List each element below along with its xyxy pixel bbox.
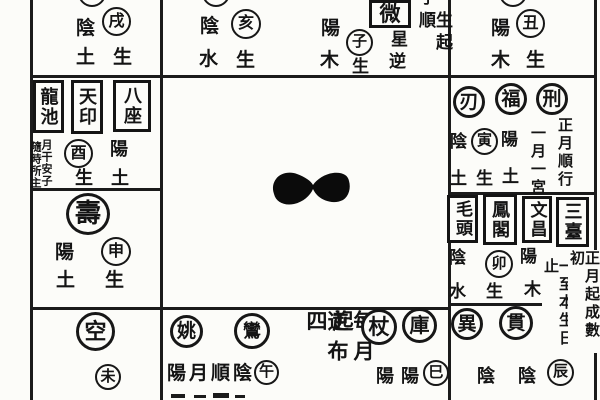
circled-star-ren: 刃	[453, 86, 485, 118]
ink-blob-bowtie	[270, 169, 354, 207]
sheng-label: 生	[236, 51, 255, 70]
sheng-label: 生	[476, 170, 493, 187]
branch-hai-circle: 亥	[231, 9, 261, 39]
yinyang-label: 陰	[518, 367, 536, 385]
boxed-star-tianyin: 天印	[71, 80, 103, 134]
circled-star-yi: 異	[451, 308, 483, 340]
cut-circle-top-chou	[499, 0, 527, 7]
sheng-label: 生	[105, 271, 124, 290]
branch-yin-circle: 寅	[471, 128, 498, 155]
element-label: 土	[502, 168, 519, 185]
note-column-yi-yue-yi-gong: 一月一宮	[529, 125, 544, 197]
grid-hline-right-row3	[448, 303, 544, 306]
cut-text-fragment	[194, 395, 206, 398]
circled-star-ku: 庫	[402, 308, 437, 343]
scanned-astrology-chart-page: 陰 戌 土 生 陰 亥 水 生 陽 木 子 生 微 星 逆 子 生起順 陽 丑 …	[0, 0, 600, 400]
element-label: 水	[199, 50, 218, 69]
sheng-label: 生	[352, 58, 369, 75]
branch-chen-circle: 辰	[547, 359, 574, 386]
boxed-star-wei: 微	[369, 0, 411, 28]
circled-star-shou: 壽	[66, 193, 110, 235]
circled-star-luan: 鸞	[234, 313, 270, 349]
cut-text-fragment	[235, 395, 245, 398]
grid-hline-row3	[30, 307, 451, 310]
branch-mao-circle: 卯	[485, 250, 513, 278]
boxed-star-bazuo: 八座	[113, 80, 151, 132]
element-label: 土	[76, 48, 95, 67]
yinyang-label: 陽	[55, 243, 74, 262]
yinyang-label: 陰	[449, 249, 466, 266]
grid-vline-left-column	[160, 0, 163, 400]
note-column-zheng-yue-qi-cheng-shu-chu: 正月起成數初	[568, 250, 598, 353]
circled-star-fu: 福	[495, 83, 527, 115]
note-column-zheng-yue-shun-xing: 正月順行	[556, 117, 571, 197]
note-column-sheng-qi-shun: 生起順	[417, 11, 451, 75]
note-yang-yue-shun-yin: 陽月順陰	[167, 364, 255, 383]
branch-zi-circle: 子	[346, 29, 373, 56]
cut-circle-top-hai	[202, 0, 230, 7]
yinyang-label: 陽	[501, 131, 518, 148]
yinyang-label: 陽	[520, 248, 537, 265]
branch-si-circle: 巳	[423, 360, 449, 386]
border-left	[30, 0, 33, 400]
element-label: 木	[491, 51, 510, 70]
circled-star-yao: 姚	[170, 315, 203, 348]
circled-star-guan: 貫	[499, 306, 533, 340]
yinyang-label: 陽	[321, 19, 340, 38]
micro-note-outer: 隨時所主	[29, 141, 40, 191]
sheng-label: 生	[113, 48, 132, 67]
yinyang-label: 陽	[376, 367, 394, 385]
branch-chou-circle: 丑	[516, 9, 545, 38]
sheng-label: 生	[486, 283, 503, 300]
branch-xu-circle: 戌	[102, 7, 131, 36]
yinyang-label: 陰	[76, 19, 95, 38]
grid-hline-row1	[30, 75, 597, 78]
sheng-label: 生	[526, 51, 545, 70]
element-label: 木	[320, 51, 339, 70]
yinyang-label: 陽	[401, 367, 419, 385]
branch-wu-circle: 午	[254, 360, 279, 385]
cut-note-char: 子	[420, 0, 438, 9]
sheng-label: 生	[75, 169, 93, 187]
yinyang-label: 陽	[110, 140, 128, 158]
circled-star-zhang: 杖	[361, 309, 397, 345]
element-label: 土	[450, 170, 467, 187]
boxed-star-wenchang: 文昌	[522, 196, 552, 243]
element-label: 木	[524, 281, 541, 298]
boxed-star-longchi: 龍池	[33, 80, 64, 133]
yinyang-label: 陰	[477, 367, 495, 385]
circled-star-kong: 空	[76, 312, 115, 351]
note-char: 逆	[389, 53, 406, 70]
boxed-star-fengge: 鳳閣	[483, 194, 517, 245]
yinyang-label: 陽	[491, 19, 510, 38]
circled-star-xing: 刑	[536, 83, 568, 115]
cut-circle-top-xu	[78, 0, 106, 7]
boxed-star-santai: 三臺	[556, 197, 589, 247]
branch-you-circle: 酉	[64, 139, 93, 168]
cut-text-fragment	[213, 393, 229, 398]
branch-wei-circle: 未	[95, 364, 121, 390]
yinyang-label: 陰	[200, 17, 219, 36]
element-label: 土	[111, 169, 129, 187]
branch-shen-circle: 申	[101, 237, 131, 266]
micro-note-inner: 月干安子	[40, 139, 51, 189]
yinyang-label: 陰	[450, 133, 467, 150]
note-char: 星	[391, 31, 408, 48]
boxed-star-maotou: 毛頭	[447, 195, 478, 243]
element-label: 水	[449, 283, 466, 300]
element-label: 土	[56, 271, 75, 290]
cut-text-fragment	[171, 394, 185, 398]
